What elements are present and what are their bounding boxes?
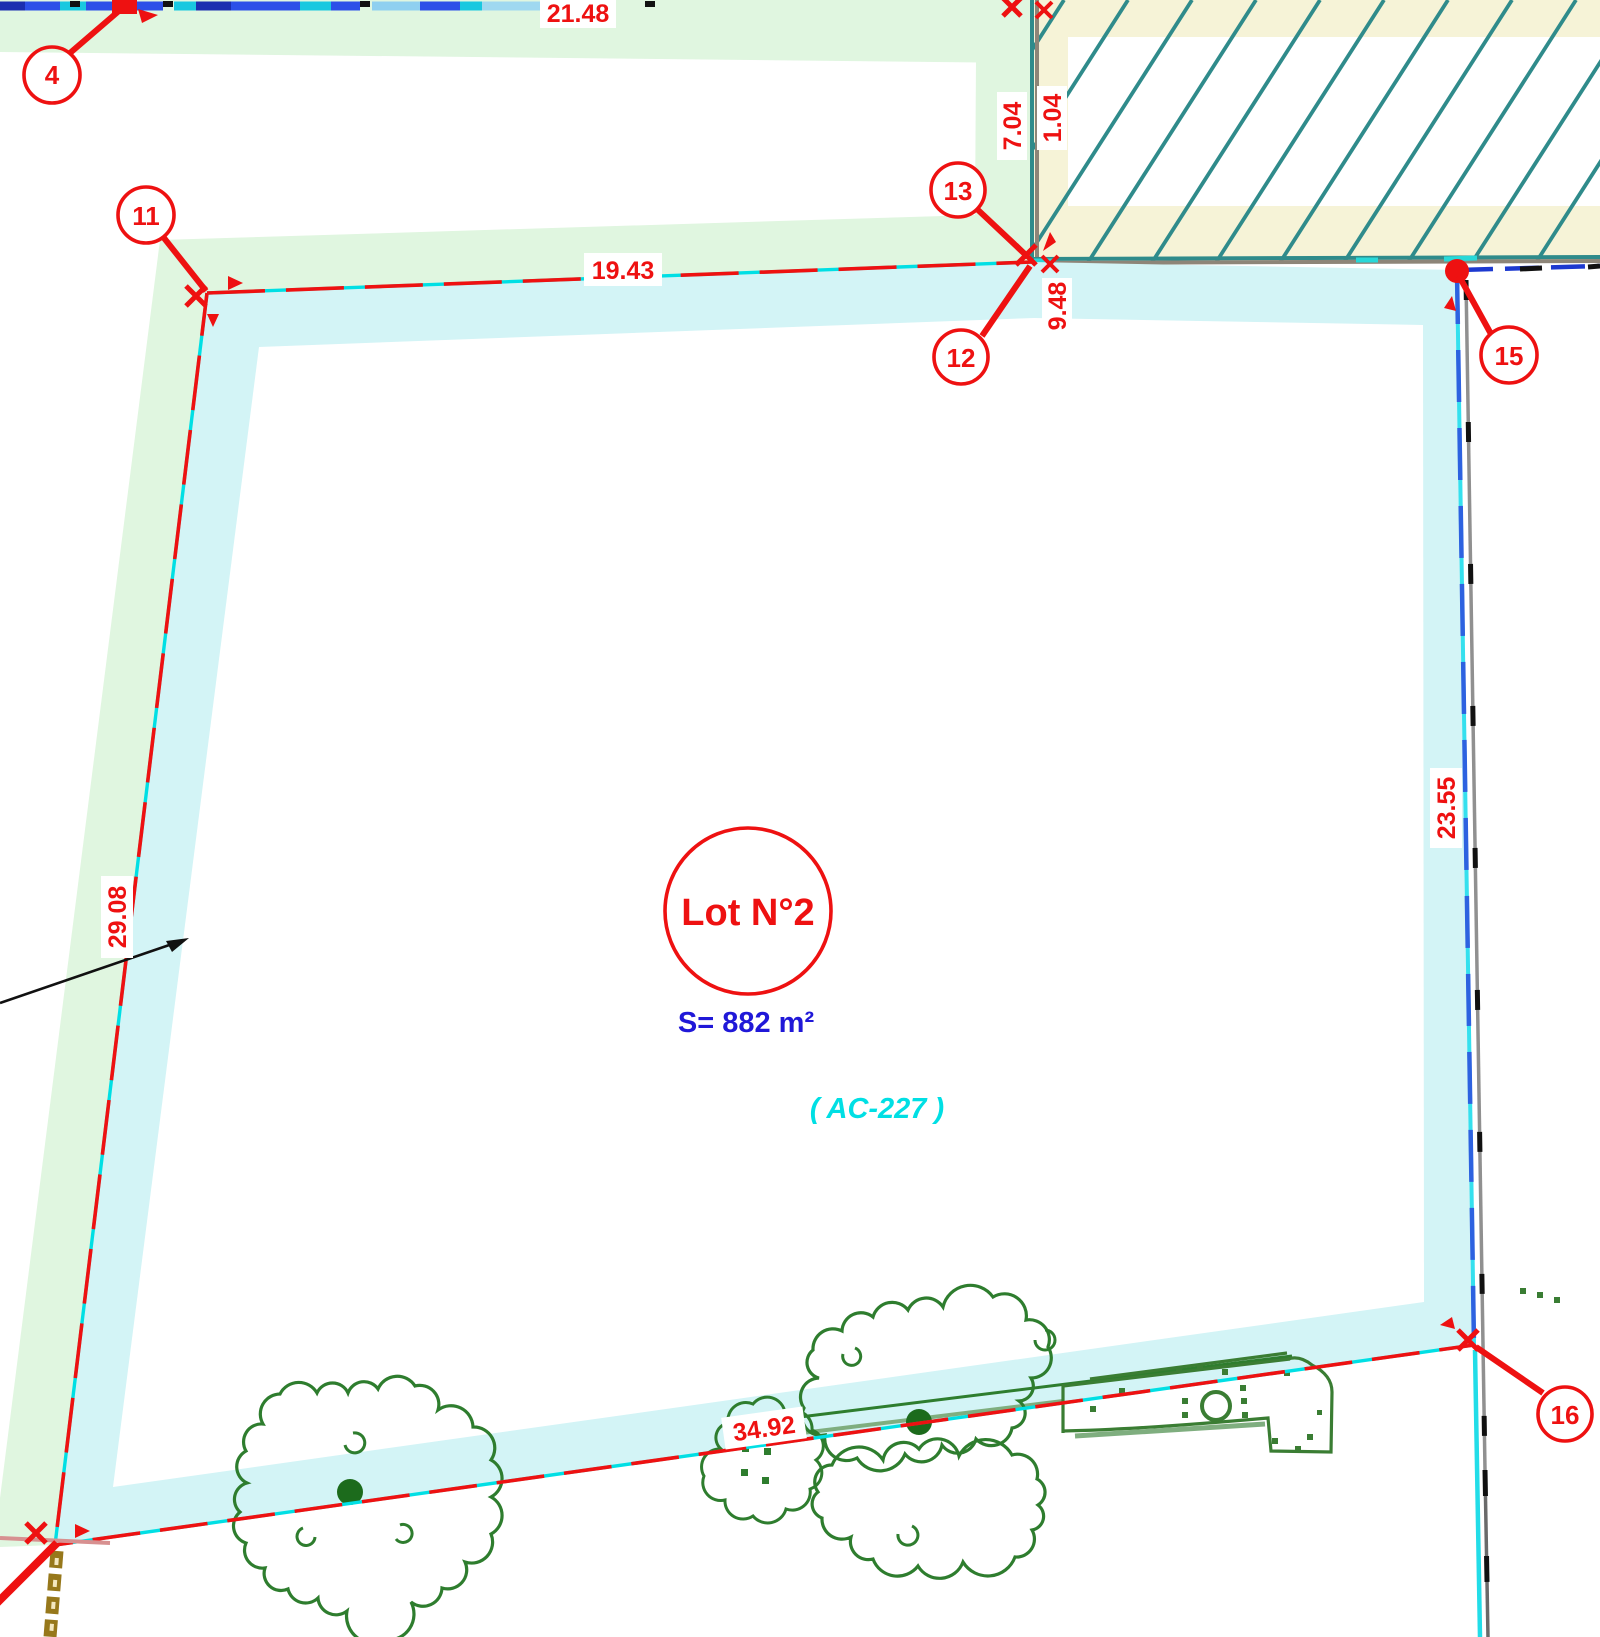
svg-text:11: 11 (132, 201, 160, 231)
svg-text:9.48: 9.48 (1044, 282, 1072, 331)
svg-text:12: 12 (947, 343, 976, 373)
svg-text:16: 16 (1551, 1400, 1580, 1430)
svg-text:21.48: 21.48 (547, 0, 610, 28)
svg-text:19.43: 19.43 (592, 257, 655, 285)
svg-text:29.08: 29.08 (104, 886, 132, 949)
svg-text:Lot N°2: Lot N°2 (681, 892, 814, 934)
svg-text:23.55: 23.55 (1433, 777, 1461, 840)
svg-text:13: 13 (944, 176, 973, 206)
svg-text:1.04: 1.04 (1039, 94, 1067, 143)
svg-text:( AC-227 ): ( AC-227 ) (810, 1093, 944, 1125)
svg-text:4: 4 (45, 60, 60, 90)
svg-text:S= 882 m²: S= 882 m² (678, 1007, 815, 1039)
svg-text:7.04: 7.04 (999, 102, 1027, 151)
svg-text:15: 15 (1495, 341, 1524, 371)
